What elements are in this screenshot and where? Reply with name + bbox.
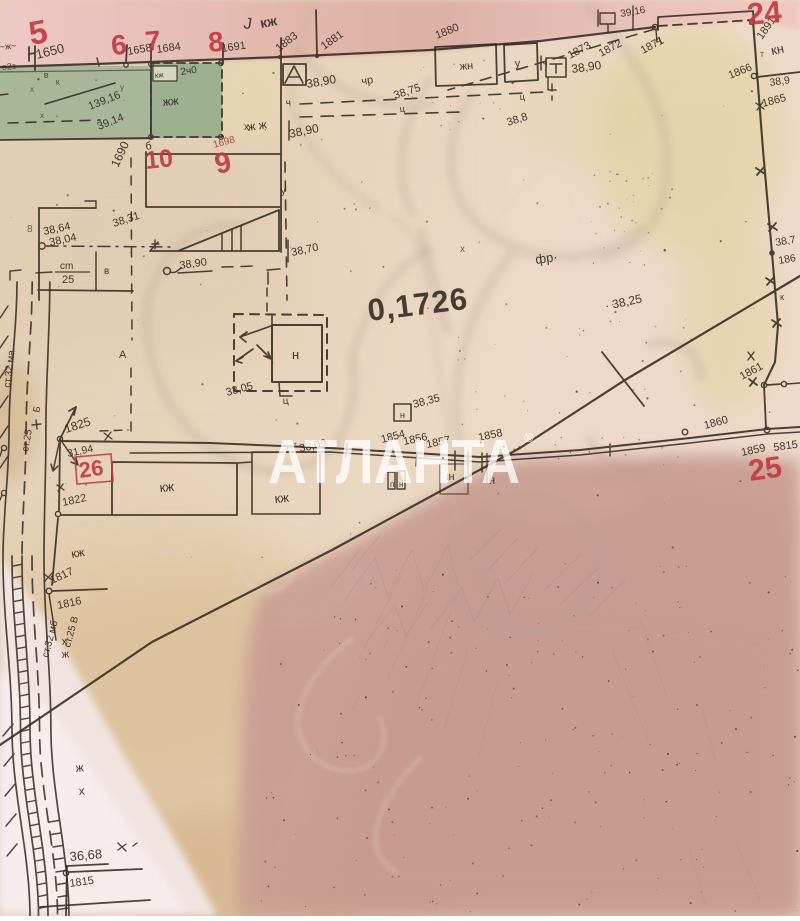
svg-text:26: 26 [77,455,105,483]
svg-text:6: 6 [110,29,128,61]
svg-text:х: х [78,784,85,798]
svg-text:®: ® [524,430,534,445]
svg-text:у: у [280,186,286,197]
svg-text:н: н [292,347,299,362]
svg-text:25: 25 [62,274,74,286]
svg-text:в: в [104,266,109,277]
svg-text:25: 25 [746,451,784,488]
svg-text:н: н [400,410,405,420]
svg-text:ц: ц [399,104,405,114]
svg-text:сm: сm [60,261,73,272]
svg-text:жн: жн [459,60,473,73]
svg-text:у: у [120,83,124,92]
svg-text:ч: ч [285,98,291,109]
svg-text:7: 7 [144,25,162,57]
svg-text:АТЛАНТА: АТЛАНТА [268,428,520,497]
svg-text:кж: кж [70,545,86,561]
svg-text:24: 24 [746,0,784,32]
svg-text:~ж~: ~ж~ [0,41,17,52]
svg-text:чр: чр [360,74,374,88]
svg-text:к: к [780,292,784,302]
svg-text:х: х [40,111,44,120]
svg-text:кж: кж [154,70,164,80]
svg-text:ж: ж [75,760,84,775]
svg-text:ц: ц [519,92,525,102]
svg-text:х: х [30,85,34,94]
svg-text:ж ж: ж ж [246,117,267,134]
svg-text:кж: кж [159,479,175,495]
svg-text:10: 10 [144,144,175,175]
svg-text:8: 8 [27,224,33,235]
svg-text:х: х [460,244,465,255]
svg-text:о2з: о2з [1,61,16,72]
svg-text:36,68: 36,68 [69,846,103,864]
svg-text:ц: ц [655,34,661,44]
svg-text:т: т [760,49,764,59]
svg-text:8: 8 [207,26,225,58]
svg-text:жж: жж [162,94,179,109]
svg-text:2ч0: 2ч0 [180,65,198,78]
svg-text:А: А [119,349,127,361]
svg-text:фр·: фр· [534,249,558,267]
